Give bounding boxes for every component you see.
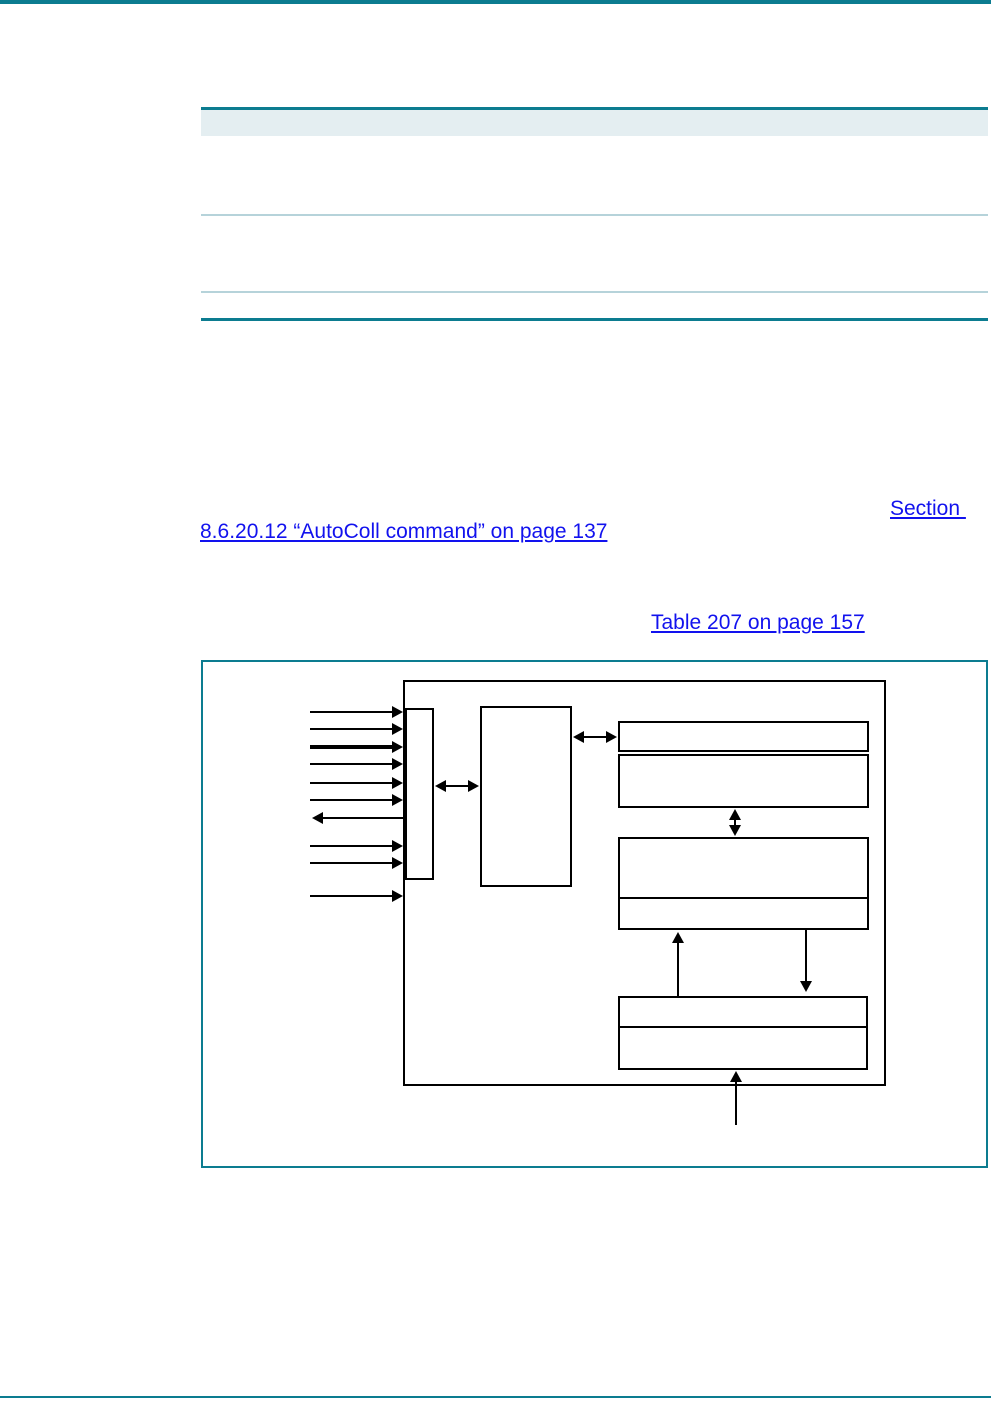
table-bottom-rule <box>201 318 988 321</box>
bidirectional-arrow-interface-register <box>573 731 617 743</box>
bidirectional-arrow-io-interface <box>435 780 479 792</box>
diagram-middle-box <box>618 837 869 930</box>
document-page: Section 8.6.20.12 “AutoColl command” on … <box>0 0 991 1401</box>
signal-arrow-in-7 <box>310 840 403 852</box>
signal-arrow-in-8 <box>310 857 403 869</box>
diagram-bottom-box-divider <box>619 1026 867 1028</box>
link-table-207[interactable]: Table 207 on page 157 <box>651 611 865 634</box>
signal-arrow-in-6 <box>310 794 403 806</box>
signal-arrow-in-2 <box>310 723 403 735</box>
link-autocoll-command[interactable]: 8.6.20.12 “AutoColl command” on page 137 <box>200 520 607 543</box>
page-bottom-rule <box>0 1396 991 1398</box>
diagram-io-pins-box <box>405 708 434 880</box>
diagram-bottom-box <box>618 996 868 1070</box>
arrow-up-bottom-to-middle <box>672 932 684 996</box>
diagram-middle-box-divider <box>619 897 868 899</box>
signal-arrow-in-3-bold <box>310 741 403 753</box>
signal-arrow-out <box>312 812 403 824</box>
signal-arrow-in-4 <box>310 758 403 770</box>
page-top-rule <box>0 0 991 4</box>
diagram-register-box-top <box>618 721 869 752</box>
signal-arrow-in-5 <box>310 777 403 789</box>
arrow-external-input <box>730 1071 742 1125</box>
arrow-down-middle-to-bottom <box>800 930 812 992</box>
figure-frame <box>201 660 988 1168</box>
table-row-rule <box>201 214 988 216</box>
signal-arrow-in-1 <box>310 706 403 718</box>
bidirectional-arrow-register-middle <box>729 809 741 836</box>
signal-arrow-in-9 <box>310 890 403 902</box>
table-header-band <box>201 110 988 136</box>
diagram-register-box-second <box>618 754 869 808</box>
diagram-interface-box <box>480 706 572 887</box>
link-section-word[interactable]: Section <box>890 497 966 520</box>
table-row-rule <box>201 291 988 293</box>
